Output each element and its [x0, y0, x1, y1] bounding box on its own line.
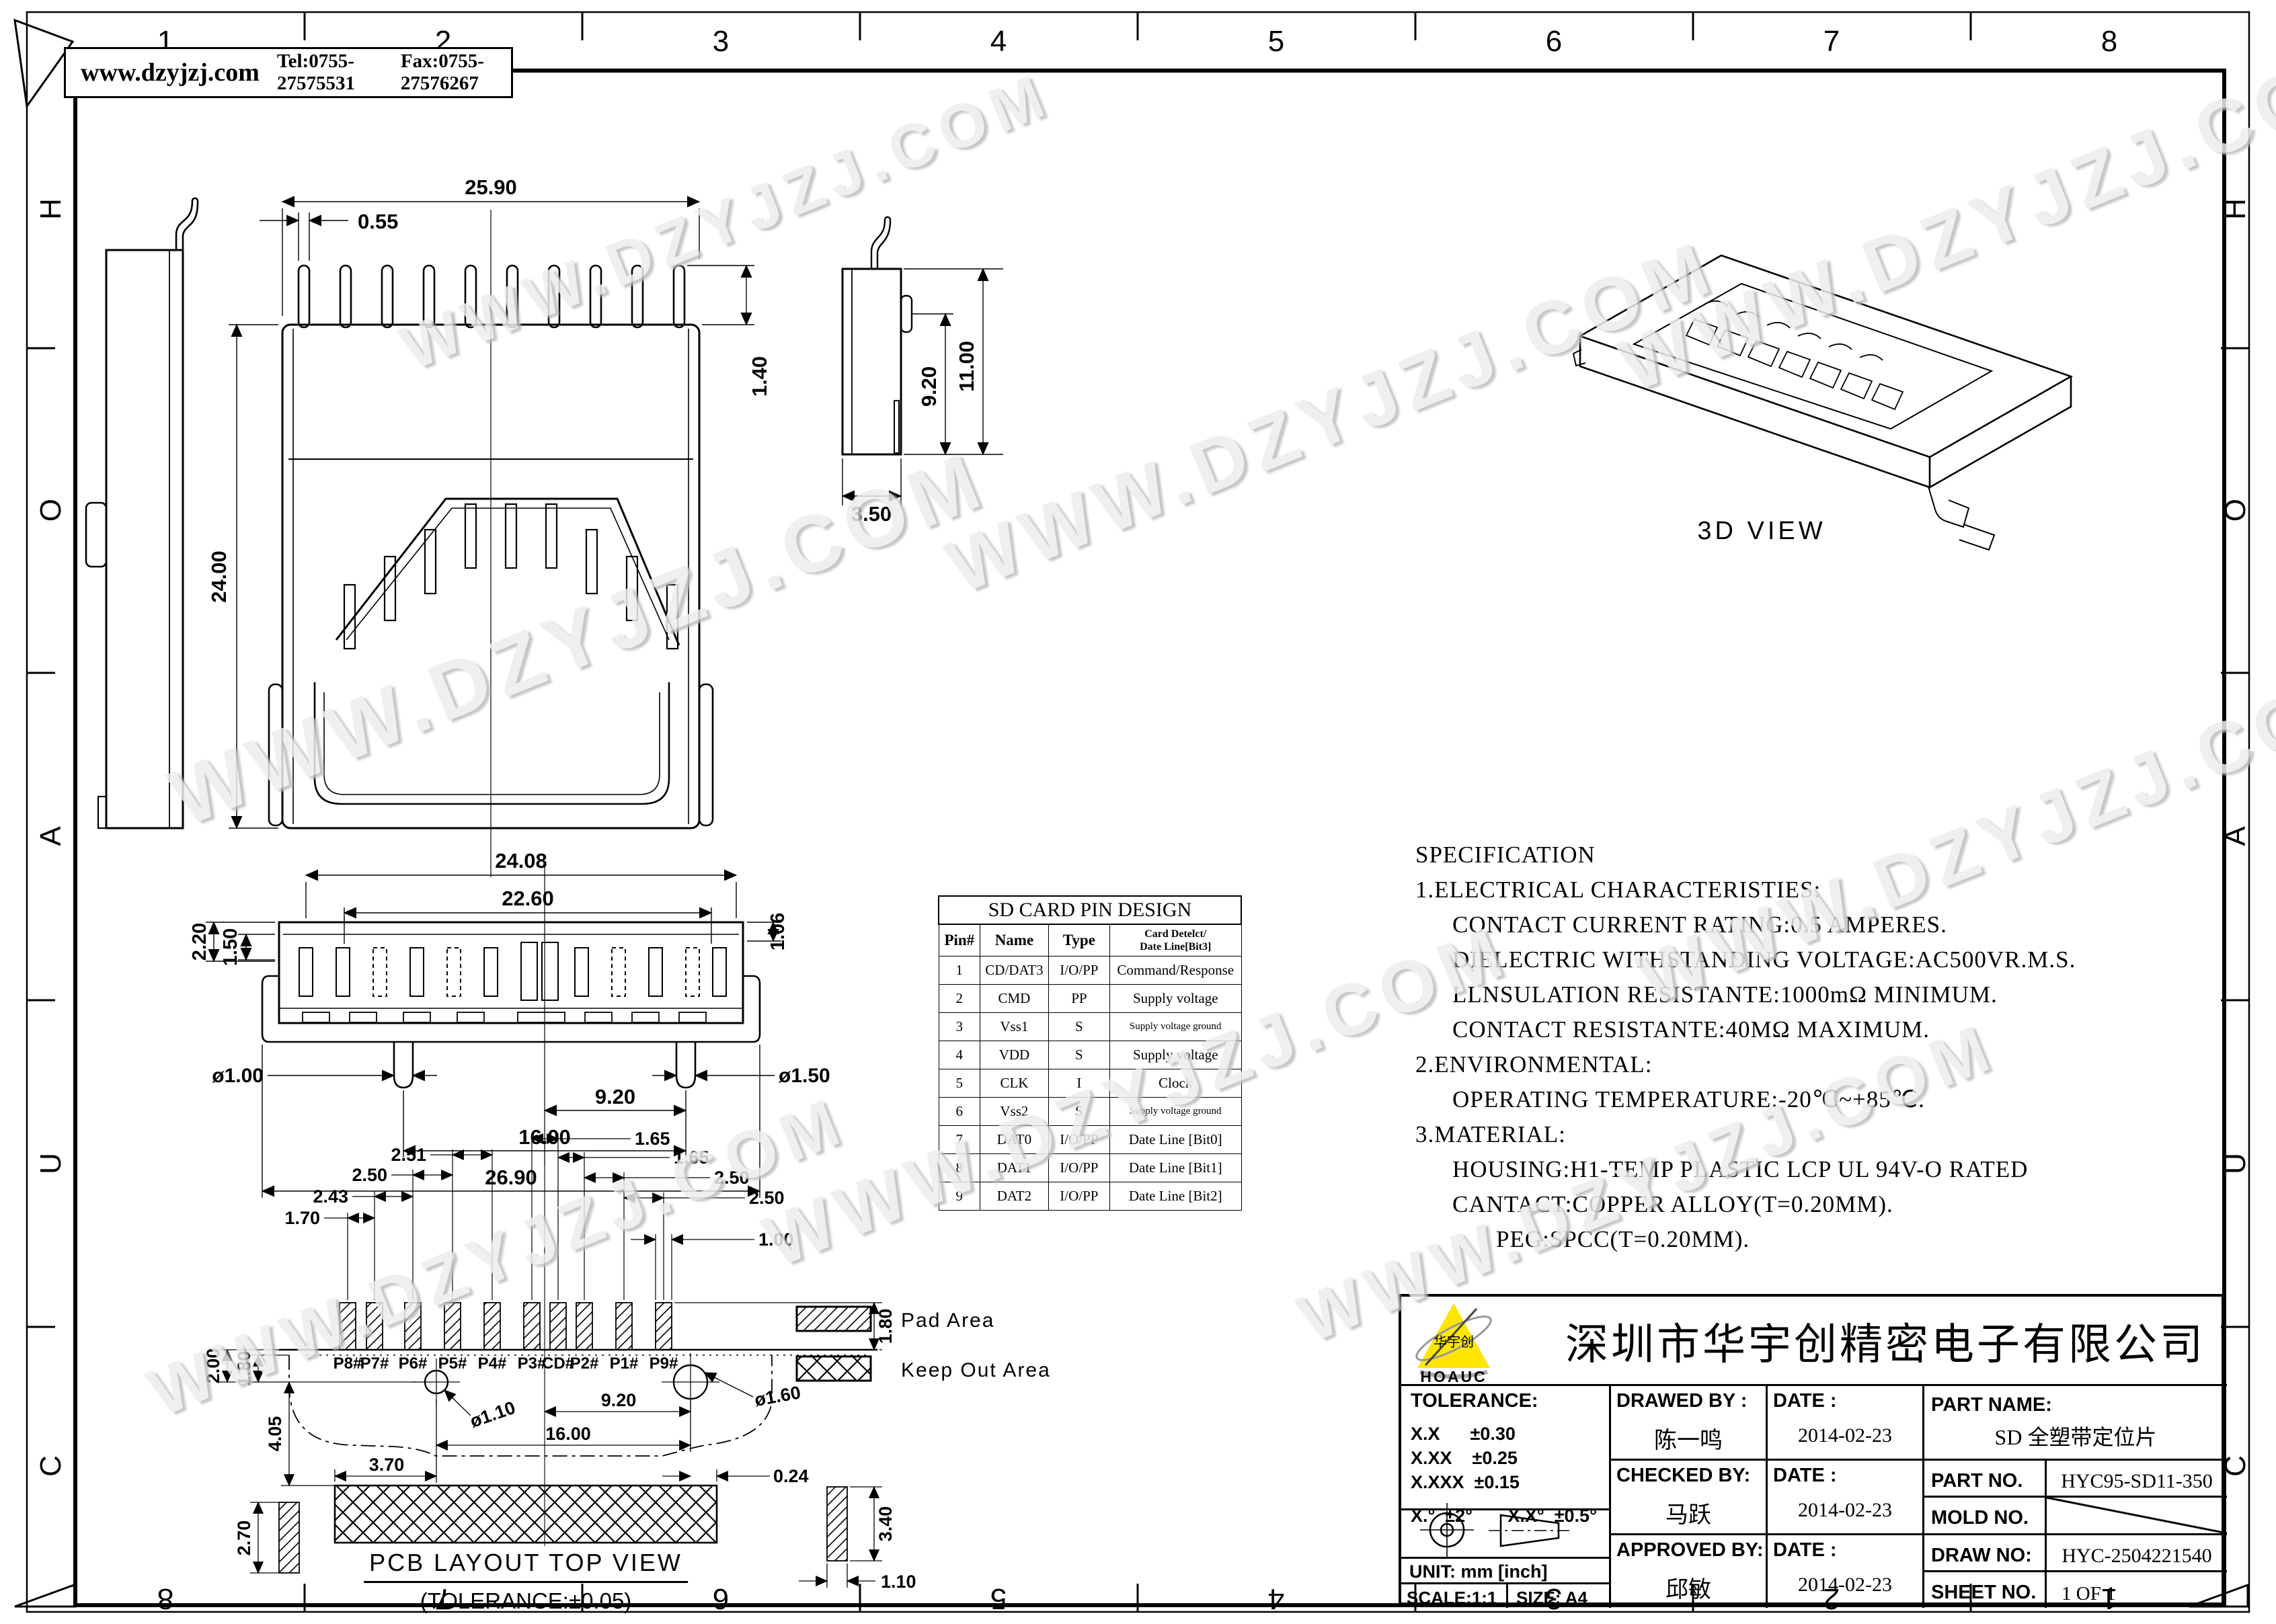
dim-front-h1: 2.20: [189, 923, 210, 961]
sd-pin-table: SD CARD PIN DESIGN Pin# Name Type Card D…: [938, 895, 1242, 1211]
pcb-view-caption: PCB LAYOUT TOP VIEW (TOLERANCE:±0.05): [364, 1549, 688, 1614]
front-peg-left: [394, 1042, 413, 1088]
pcb-dim-v3: 4.05: [265, 1416, 285, 1452]
pin-cell: 7: [939, 1126, 980, 1154]
draw-no-value: HYC-2504221540: [2047, 1533, 2227, 1570]
pcb-dim-v2: 1.80: [234, 1351, 254, 1387]
part-no-value: HYC95-SD11-350: [2047, 1459, 2227, 1496]
pin-cell: CMD: [980, 985, 1049, 1013]
pin-cell: 8: [939, 1154, 980, 1182]
pcb-dim-pad-r-w: 1.10: [881, 1572, 916, 1592]
tolerance-line: X.XX ±0.25: [1411, 1446, 1609, 1470]
date-value: 2014-02-23: [1768, 1424, 1922, 1447]
dim-front-half-span: 9.20: [595, 1085, 635, 1108]
date-label: DATE :: [1773, 1539, 1922, 1561]
top-view-pins: [299, 266, 684, 327]
pcb-dim-r4: 2.50: [749, 1188, 785, 1208]
size-cell: SIZE: A4: [1506, 1582, 1611, 1608]
iso-view-label: 3D VIEW: [1697, 517, 1826, 545]
sheet-no-value: 1 OF 1: [2047, 1570, 2227, 1608]
dim-front-h2: 1.50: [220, 928, 241, 966]
pcb-pad-label: P7#: [360, 1354, 389, 1373]
trim-mark-bottom-left: [15, 1585, 75, 1607]
tolerance-line: X.XXX ±0.15: [1411, 1470, 1609, 1494]
part-no-label: PART NO.: [1924, 1459, 2047, 1496]
pin-cell: S: [1048, 1013, 1109, 1041]
pcb-view-tolerance: (TOLERANCE:±0.05): [364, 1588, 688, 1614]
pin-cell: CLK: [980, 1069, 1049, 1098]
draw-no-label: DRAW NO:: [1924, 1533, 2047, 1570]
header-line: Card Detelct/: [1144, 928, 1206, 940]
pin-cell: 2: [939, 985, 980, 1013]
pcb-dim-v4: 2.70: [234, 1520, 254, 1556]
pcb-dim-pad-r-h: 3.40: [875, 1506, 896, 1542]
pin-cell: VDD: [980, 1041, 1049, 1069]
spec-title: SPECIFICATION: [1415, 838, 2076, 872]
pcb-dim-half: 9.20: [601, 1390, 637, 1410]
title-block: 华宇创 HOAUC 深圳市华宇创精密电子有限公司 TOLERANCE: X.X …: [1399, 1294, 2224, 1605]
table-row: 8DAT1I/O/PPDate Line [Bit1]: [939, 1154, 1241, 1182]
pcb-pad-label: P4#: [478, 1354, 507, 1373]
spec-line: 2.ENVIRONMENTAL:: [1415, 1047, 2076, 1082]
pcb-keepout-area: [335, 1486, 717, 1543]
pin-cell: DAT0: [980, 1126, 1049, 1154]
dim-front-h3: 1.06: [767, 913, 789, 950]
top-view-dimensions: [229, 202, 754, 828]
pcb-dim-r2: 1.65: [674, 1147, 709, 1168]
approved-by-label: APPROVED BY:: [1616, 1539, 1766, 1561]
pin-cell: 6: [939, 1098, 980, 1126]
table-row: 3Vss1SSupply voltage ground: [939, 1013, 1241, 1041]
approved-by-value: 邱敏: [1611, 1571, 1766, 1604]
dim-top-pin-depth: 1.40: [748, 356, 771, 397]
table-row: 4VDDSSupply voltage: [939, 1041, 1241, 1069]
drawn-by-cell: DRAWED BY : 陈一鸣: [1611, 1384, 1768, 1459]
pcb-dim-l3: 2.43: [313, 1186, 348, 1207]
pcb-corner-pad-right: [827, 1487, 847, 1561]
approved-by-cell: APPROVED BY: 邱敏: [1611, 1533, 1768, 1608]
front-peg-right: [676, 1042, 695, 1088]
pin-cell: Date Line [Bit2]: [1109, 1182, 1241, 1211]
part-name-value: SD 全塑带定位片: [1924, 1420, 2227, 1451]
checked-by-value: 马跃: [1611, 1496, 1766, 1529]
date-cell: DATE : 2014-02-23: [1768, 1533, 1924, 1608]
pcb-dim-pad-h: 1.80: [875, 1309, 896, 1344]
pin-col-header: Card Detelct/ Date Line[Bit3]: [1109, 924, 1241, 957]
pin-col-header: Name: [980, 924, 1049, 957]
phone-number: Tel:0755-27575531: [277, 50, 383, 95]
pcb-dim-r3: 2.50: [714, 1168, 750, 1188]
spec-line: HOUSING:H1-TEMP PLASTIC LCP UL 94V-O RAT…: [1415, 1152, 2076, 1187]
pin-cell: Date Line [Bit0]: [1109, 1126, 1241, 1154]
legend-keepout-swatch: [797, 1356, 871, 1381]
table-row: 5CLKIClock: [939, 1069, 1241, 1098]
pin-col-header: Type: [1048, 924, 1109, 957]
dim-side-inner: 9.20: [917, 366, 941, 407]
pcb-pad-label: P9#: [650, 1354, 678, 1373]
left-side-view: [86, 198, 198, 828]
dim-side-depth: 3.50: [851, 502, 892, 526]
mold-no-value: [2047, 1496, 2227, 1533]
website-link[interactable]: www.dzyjzj.com: [81, 58, 260, 87]
mold-no-label: MOLD NO.: [1924, 1496, 2047, 1533]
company-name: 深圳市华宇创精密电子有限公司: [1553, 1302, 2218, 1379]
pin-cell: CD/DAT3: [980, 957, 1049, 985]
pin-cell: 1: [939, 957, 980, 985]
legend-pad-label: Pad Area: [901, 1309, 994, 1332]
spec-line: OPERATING TEMPERATURE:-20℃~+85℃.: [1415, 1082, 2076, 1117]
pin-cell: I/O/PP: [1048, 957, 1109, 985]
drawn-by-value: 陈一鸣: [1611, 1422, 1766, 1455]
pin-cell: Supply voltage ground: [1109, 1013, 1241, 1041]
dim-front-peg-left: ø1.00: [212, 1065, 264, 1087]
pcb-dim-edge-left: 3.70: [369, 1455, 405, 1475]
logo-brand-text: 华宇创: [1434, 1334, 1474, 1350]
pcb-dim-hole-right: ø1.60: [753, 1382, 802, 1410]
spec-line: CANTACT:COPPER ALLOY(T=0.20MM).: [1415, 1187, 2076, 1222]
drawing-sheet: 25.90 0.55 1.40 24.00 9.20 11.00 3.50: [0, 0, 2276, 1624]
iso-view: [1573, 255, 2071, 550]
right-side-view: [842, 217, 912, 454]
pcb-corner-pad-left: [279, 1502, 299, 1573]
spec-line: LLNSULATION RESISTANTE:1000mΩ MINIMUM.: [1415, 977, 2076, 1012]
pcb-pad-label: P6#: [399, 1354, 428, 1373]
pin-cell: I: [1048, 1069, 1109, 1098]
fax-number: Fax:0755-27576267: [401, 50, 511, 95]
dim-side-height: 11.00: [955, 341, 978, 392]
company-logo: 华宇创 HOAUC: [1407, 1298, 1548, 1383]
unit-cell: UNIT: mm [inch]: [1401, 1557, 1611, 1582]
date-label: DATE :: [1773, 1465, 1922, 1487]
date-cell: DATE : 2014-02-23: [1768, 1384, 1924, 1459]
pin-cell: I/O/PP: [1048, 1126, 1109, 1154]
spec-line: DIELECTRIC WITHSTANDING VOLTAGE:AC500VR.…: [1415, 942, 2076, 977]
scale-cell: SCALE:1:1: [1401, 1582, 1506, 1608]
dim-front-overall: 26.90: [485, 1166, 537, 1189]
pcb-pad-label: P5#: [438, 1354, 467, 1373]
pin-cell: Date Line [Bit1]: [1109, 1154, 1241, 1182]
iso-contacts: [1686, 301, 1903, 409]
pcb-view-title: PCB LAYOUT TOP VIEW: [364, 1549, 688, 1583]
legend: [797, 1307, 871, 1381]
header-line: Date Line[Bit3]: [1140, 941, 1211, 952]
date-cell: DATE : 2014-02-23: [1768, 1459, 1924, 1533]
legend-keepout-label: Keep Out Area: [901, 1359, 1051, 1381]
spec-line: 3.MATERIAL:: [1415, 1117, 2076, 1152]
legend-pad-swatch: [797, 1307, 871, 1331]
spec-line: CONTACT RESISTANTE:40MΩ MAXIMUM.: [1415, 1012, 2076, 1047]
date-value: 2014-02-23: [1768, 1499, 1922, 1522]
pcb-pad-label: P2#: [570, 1354, 599, 1373]
pcb-dim-r1: 1.65: [635, 1129, 670, 1149]
logo-name-text: HOAUC: [1420, 1368, 1487, 1383]
dim-front-contacts: 22.60: [502, 887, 554, 910]
pin-col-header: Pin#: [939, 924, 980, 957]
part-name-label: PART NAME:: [1931, 1394, 2227, 1416]
dim-top-pin: 0.55: [358, 210, 398, 233]
pin-cell: DAT2: [980, 1182, 1049, 1211]
spec-line: CONTACT CURRENT RATING:0.5 AMPERES.: [1415, 907, 2076, 942]
dim-front-peg-right: ø1.50: [779, 1065, 830, 1087]
checked-by-cell: CHECKED BY: 马跃: [1611, 1459, 1768, 1533]
pin-cell: 5: [939, 1069, 980, 1098]
table-row: 7DAT0I/O/PPDate Line [Bit0]: [939, 1126, 1241, 1154]
pin-cell: I/O/PP: [1048, 1154, 1109, 1182]
dim-top-width: 25.90: [465, 175, 517, 199]
spec-line: 1.ELECTRICAL CHARACTERISTIES:: [1415, 872, 2076, 907]
pin-table-title: SD CARD PIN DESIGN: [939, 896, 1241, 924]
front-view: [262, 866, 760, 1166]
front-view-contacts: [299, 942, 726, 1000]
date-value: 2014-02-23: [1768, 1574, 1922, 1596]
pin-cell: Clock: [1109, 1069, 1241, 1098]
pcb-dim-edge-right: 0.24: [773, 1466, 809, 1486]
specification-block: SPECIFICATION 1.ELECTRICAL CHARACTERISTI…: [1415, 838, 2076, 1257]
table-row: 9DAT2I/O/PPDate Line [Bit2]: [939, 1182, 1241, 1211]
spec-line: PEG:SPCC(T=0.20MM).: [1415, 1222, 2076, 1257]
top-view: [269, 210, 713, 877]
tolerance-line: X.X ±0.30: [1411, 1422, 1609, 1446]
checked-by-label: CHECKED BY:: [1616, 1465, 1766, 1487]
pcb-dim-r5: 1.00: [758, 1229, 794, 1250]
pin-cell: 9: [939, 1182, 980, 1211]
pcb-dim-l2: 2.50: [352, 1165, 387, 1185]
pin-cell: Vss2: [980, 1098, 1049, 1126]
drawn-by-label: DRAWED BY :: [1616, 1390, 1766, 1412]
pcb-pads: [340, 1303, 672, 1350]
pcb-dim-v1: 2.00: [203, 1348, 223, 1384]
pin-cell: S: [1048, 1041, 1109, 1069]
sheet-no-label: SHEET NO.: [1924, 1570, 2047, 1608]
tolerance-label: TOLERANCE:: [1411, 1390, 1609, 1412]
pcb-pad-label: P1#: [610, 1354, 639, 1373]
table-row: 6Vss2SSupply voltage ground: [939, 1098, 1241, 1126]
pin-cell: DAT1: [980, 1154, 1049, 1182]
tolerance-cell: TOLERANCE: X.X ±0.30 X.XX ±0.25 X.XXX ±0…: [1401, 1384, 1611, 1508]
pin-cell: 3: [939, 1013, 980, 1041]
pcb-dim-l1: 2.51: [391, 1145, 426, 1165]
front-view-feet: [303, 1012, 706, 1022]
dim-front-body: 24.08: [495, 849, 547, 872]
projection-cell: [1401, 1508, 1611, 1557]
pin-cell: Command/Response: [1109, 957, 1241, 985]
pin-cell: Supply voltage: [1109, 1041, 1241, 1069]
pin-cell: Supply voltage: [1109, 985, 1241, 1013]
pin-cell: Supply voltage ground: [1109, 1098, 1241, 1126]
table-row: 1CD/DAT3I/O/PPCommand/Response: [939, 957, 1241, 985]
dim-top-length: 24.00: [207, 551, 231, 603]
pin-cell: 4: [939, 1041, 980, 1069]
pcb-dim-hole-left: ø1.10: [467, 1397, 518, 1432]
pin-cell: Vss1: [980, 1013, 1049, 1041]
pcb-pad-label: P8#: [333, 1354, 362, 1373]
company-header: www.dzyjzj.com Tel:0755-27575531 Fax:075…: [64, 47, 513, 98]
pin-cell: S: [1048, 1098, 1109, 1126]
pcb-dim-l4: 1.70: [284, 1208, 320, 1228]
date-label: DATE :: [1773, 1390, 1922, 1412]
pcb-dim-span: 16.00: [545, 1424, 591, 1444]
table-row: 2CMDPPSupply voltage: [939, 985, 1241, 1013]
pin-cell: I/O/PP: [1048, 1182, 1109, 1211]
part-name-cell: PART NAME: SD 全塑带定位片: [1924, 1384, 2227, 1459]
pin-cell: PP: [1048, 985, 1109, 1013]
